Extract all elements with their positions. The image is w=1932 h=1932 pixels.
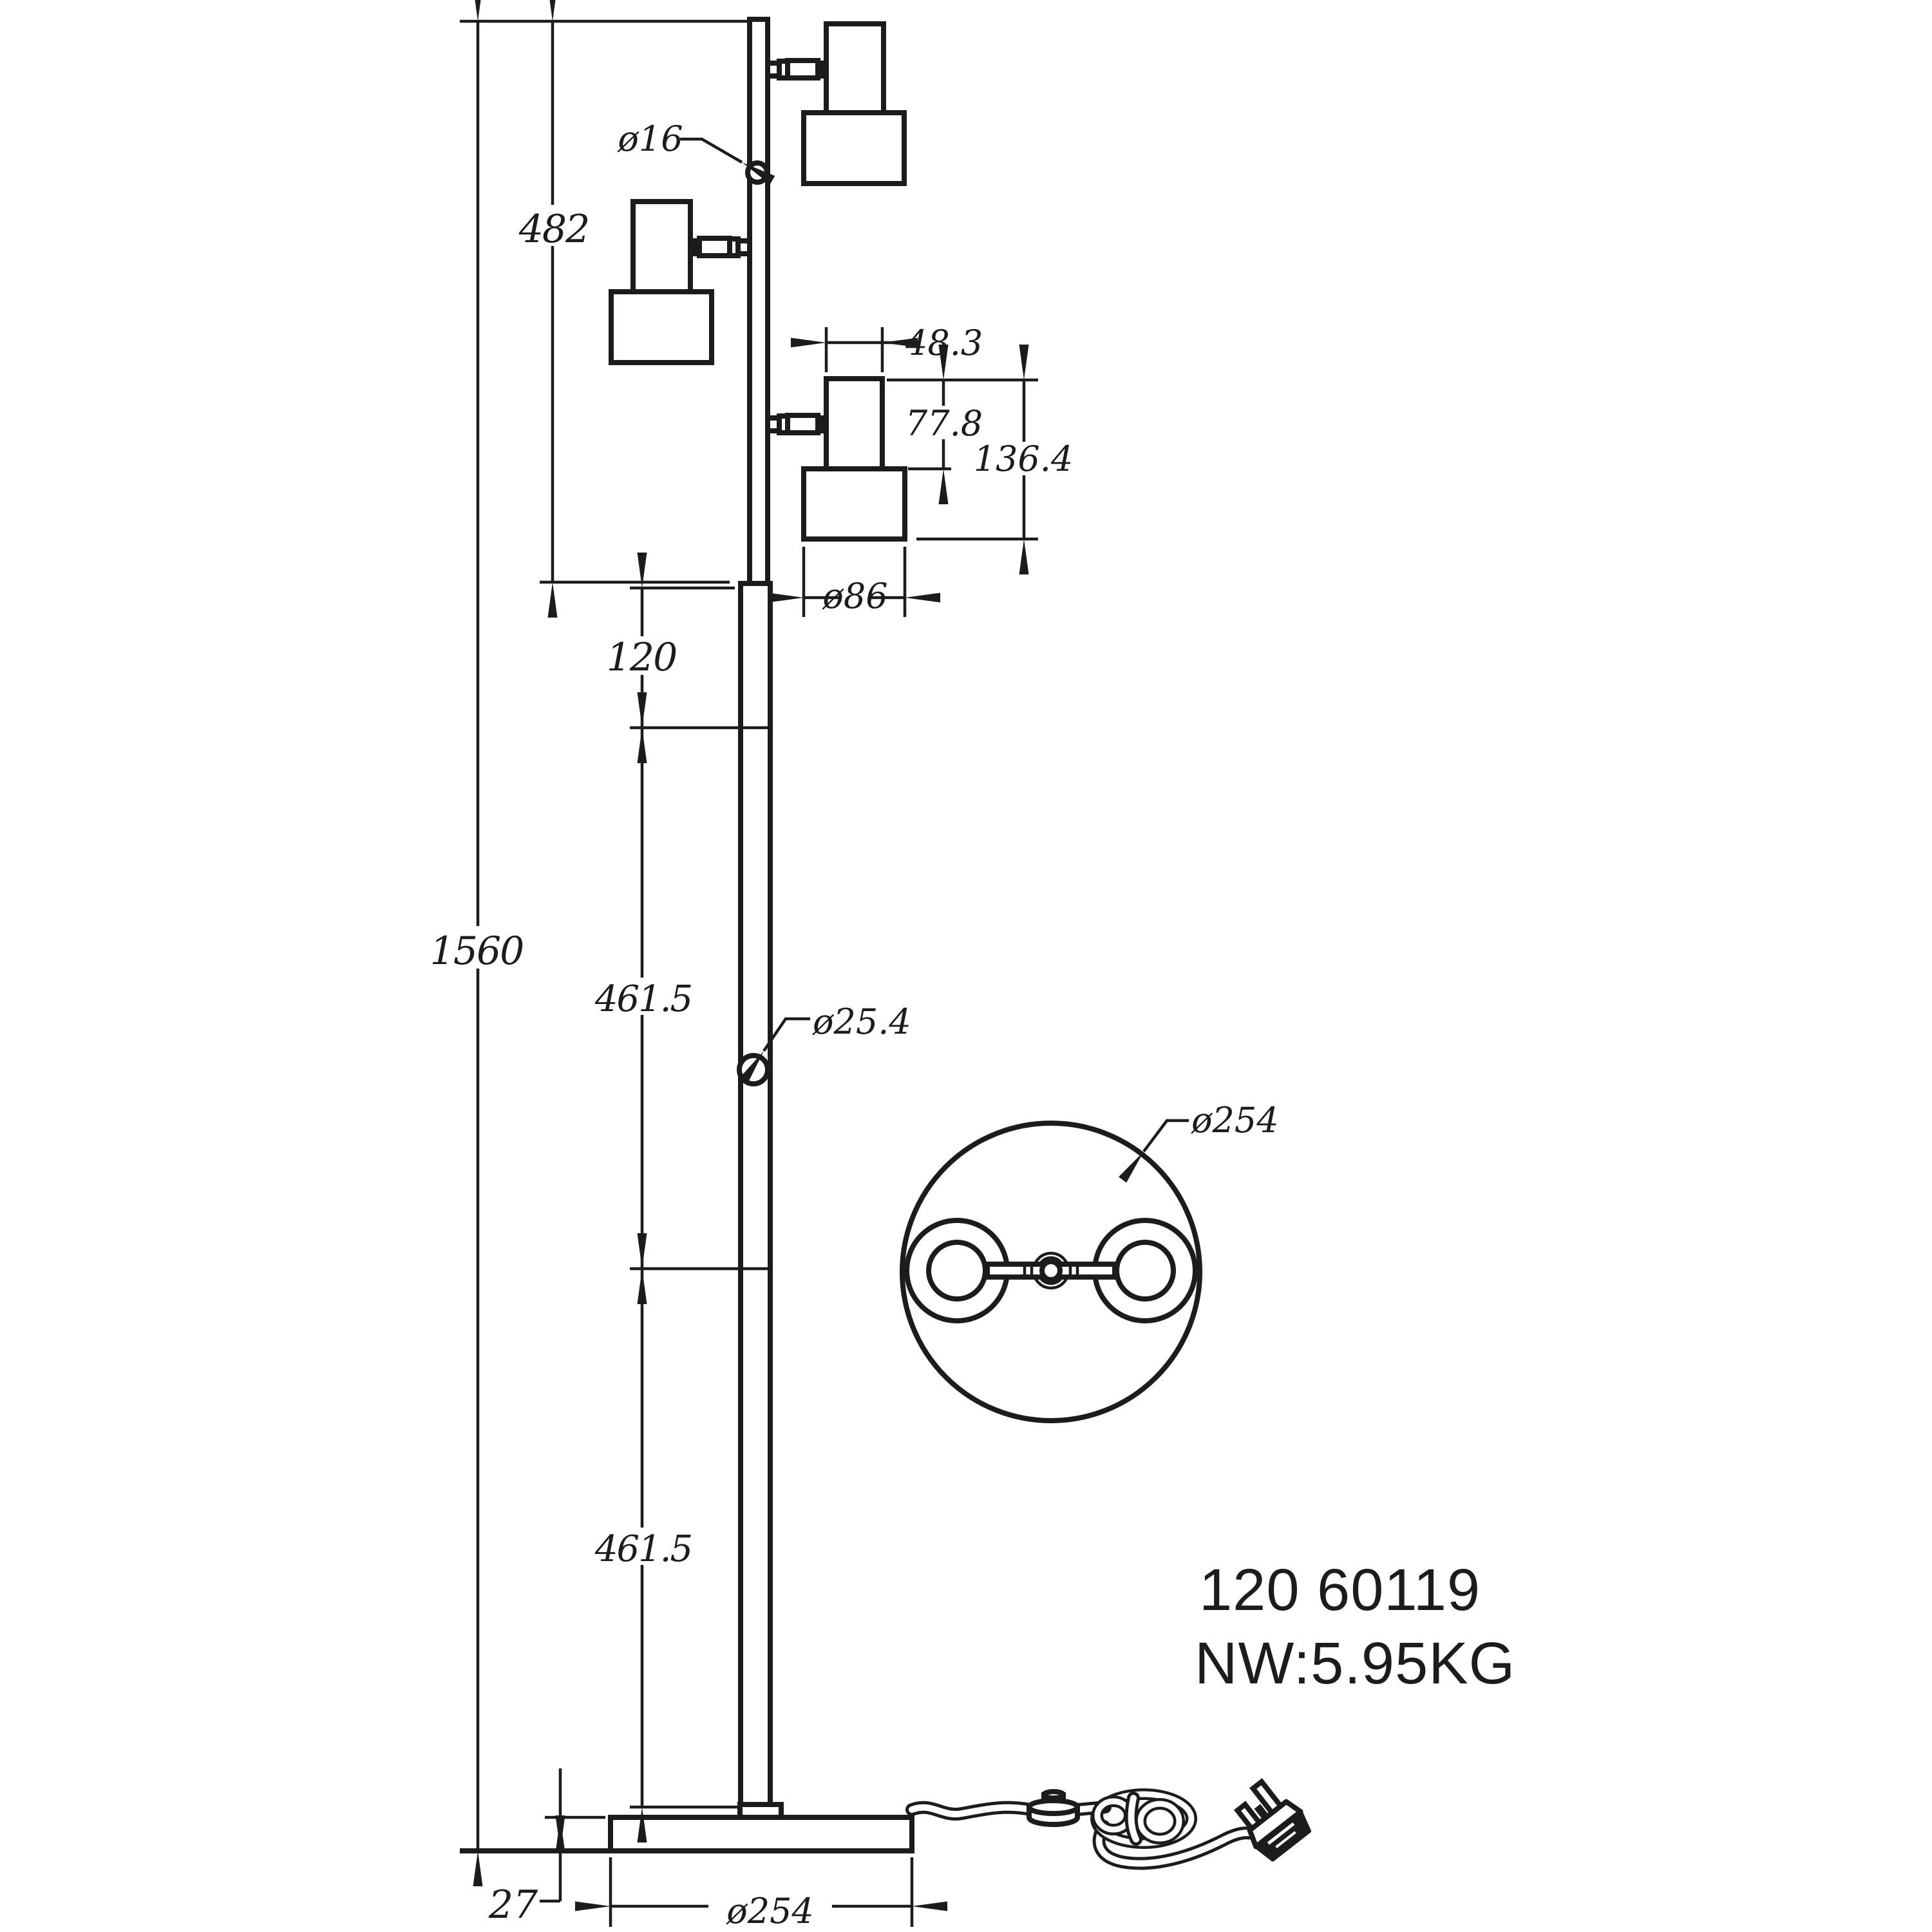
- pole-knob-icon: [739, 1056, 768, 1084]
- product-code: 120 60119: [1199, 1557, 1481, 1623]
- arm-barrel: [699, 238, 730, 256]
- left-shade-inner-circle: [929, 1242, 985, 1299]
- leader-line: [680, 139, 742, 162]
- cord-coil: [1096, 1794, 1191, 1843]
- arm-barrel: [788, 415, 818, 433]
- base-plate: [611, 1817, 912, 1851]
- dim-label: 482: [518, 207, 589, 252]
- dim-label: ø254: [726, 1891, 814, 1931]
- dim-spot-shade-diameter: ø86: [804, 547, 905, 617]
- base-top-view: [902, 1123, 1200, 1421]
- spot-head-top: [768, 24, 904, 184]
- product-net-weight: NW:5.95KG: [1195, 1631, 1515, 1696]
- callout-lower-pole-diameter: ø25.4: [764, 1001, 911, 1051]
- dim-spot-top-width: 48.3: [826, 323, 983, 372]
- technical-drawing-canvas: 1560 482 ø16 48.3 77.8: [0, 0, 1932, 1932]
- spot-body: [826, 379, 882, 469]
- leader-line: [1144, 1121, 1189, 1151]
- dim-label: 120: [607, 635, 677, 680]
- dim-label: ø86: [822, 576, 887, 616]
- dim-label: 1560: [430, 929, 524, 974]
- dim-label: ø254: [1191, 1100, 1279, 1141]
- power-cord: [912, 1774, 1313, 1864]
- spot-shade: [611, 292, 712, 363]
- dim-base-thickness: 27: [488, 1768, 605, 1927]
- foot-switch: [1029, 1792, 1077, 1824]
- dim-base-diameter: ø254: [611, 1857, 912, 1931]
- switch-body-top: [1029, 1801, 1077, 1814]
- spot-shade: [804, 469, 905, 539]
- dim-overall-height: 1560: [425, 21, 528, 1851]
- dim-label: 27: [488, 1882, 538, 1927]
- dim-pole-segment-middle: 461.5: [591, 728, 696, 1269]
- callout-top-view-diameter: ø254: [1144, 1100, 1279, 1151]
- callout-upper-pole-diameter: ø16: [617, 118, 742, 162]
- dim-label: ø16: [617, 118, 683, 159]
- hub-center-circle: [1042, 1262, 1060, 1280]
- spot-shade: [804, 113, 904, 184]
- spot-body: [826, 24, 884, 113]
- right-shade-inner-circle: [1117, 1242, 1173, 1299]
- switch-button-top: [1044, 1792, 1063, 1798]
- thumb-screw-icon: [748, 163, 767, 182]
- upper-pole: [750, 19, 768, 583]
- arm-barrel: [788, 61, 818, 78]
- dim-label: 48.3: [905, 323, 983, 363]
- spot-head-middle: [611, 202, 750, 363]
- dim-label: ø25.4: [812, 1001, 911, 1042]
- dim-label: 461.5: [594, 1528, 692, 1570]
- dim-label: 77.8: [905, 403, 983, 444]
- dim-label: 136.4: [974, 439, 1074, 479]
- drawing-page: 1560 482 ø16 48.3 77.8: [0, 0, 1932, 1932]
- dim-pole-segment-upper: 120: [607, 588, 677, 728]
- product-info: 120 60119 NW:5.95KG: [1195, 1557, 1515, 1696]
- lower-pole: [741, 583, 770, 1804]
- dim-label: 461.5: [594, 978, 692, 1020]
- spot-body: [633, 202, 690, 292]
- spot-head-lower: [768, 379, 905, 539]
- uk-plug-icon: [1227, 1774, 1314, 1863]
- dim-pole-segment-lower: 461.5: [591, 1269, 696, 1807]
- dimensions: 1560 482 ø16 48.3 77.8: [425, 21, 1279, 1931]
